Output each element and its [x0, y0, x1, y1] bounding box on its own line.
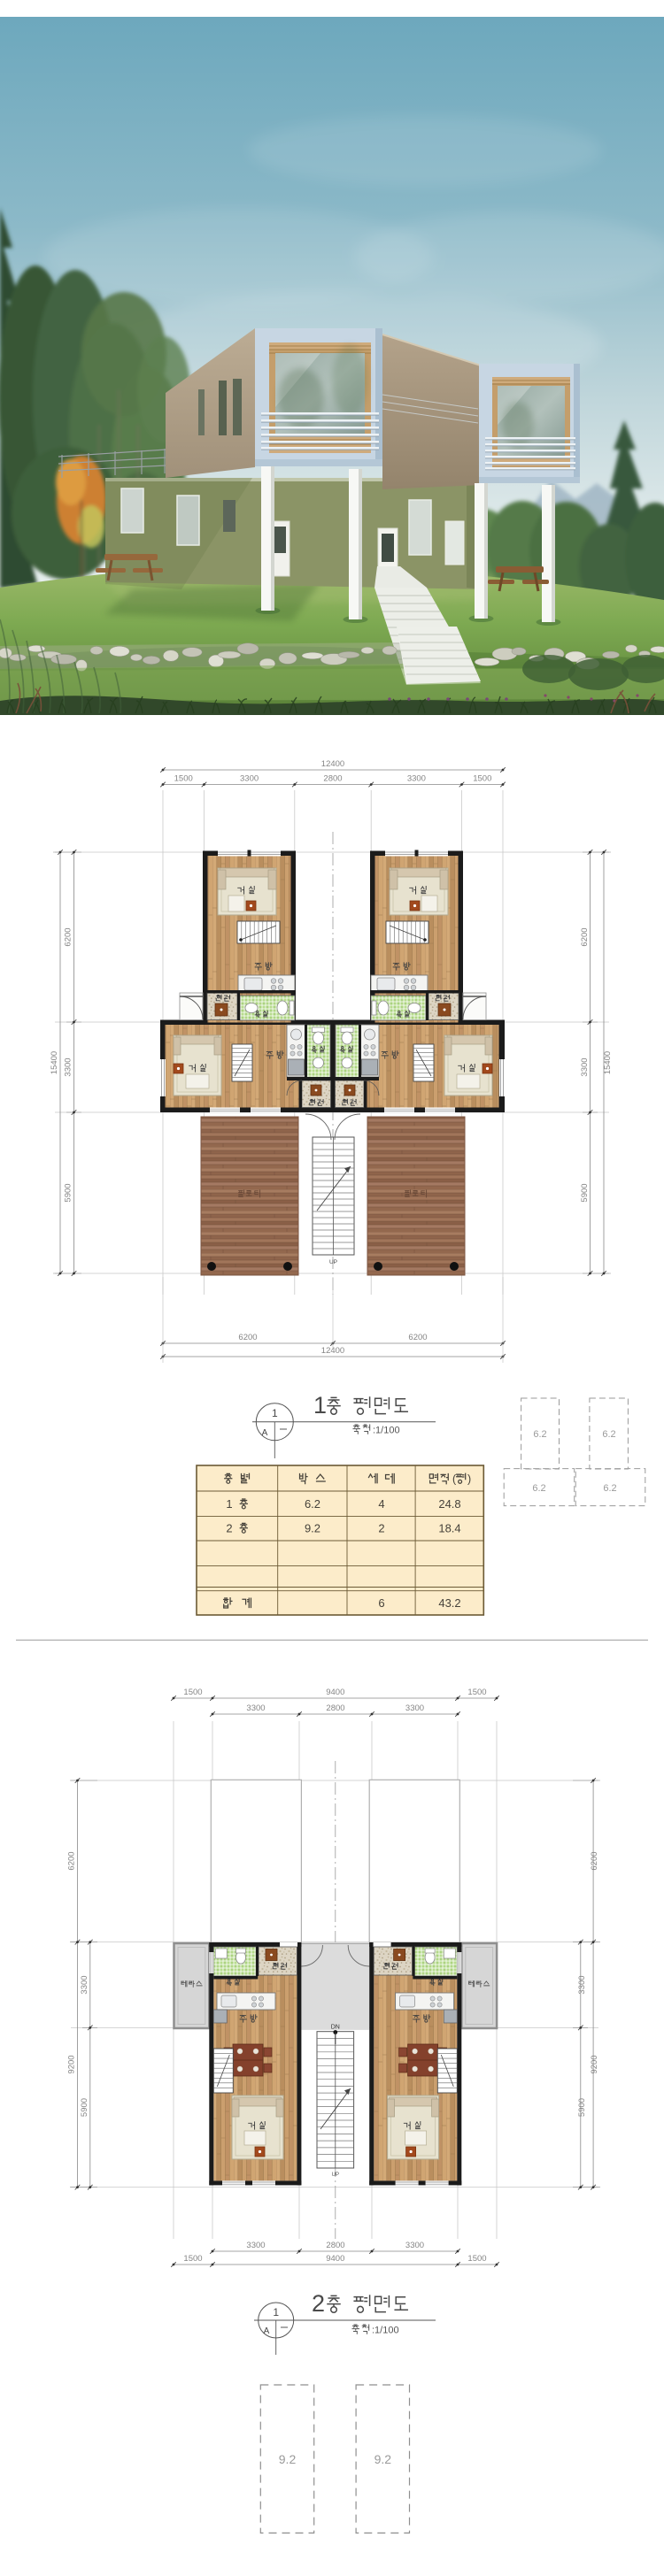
- svg-text:3300: 3300: [405, 2241, 424, 2250]
- svg-text:15400: 15400: [50, 1051, 59, 1074]
- svg-text:6200: 6200: [64, 927, 73, 946]
- svg-text:6.2: 6.2: [533, 1429, 546, 1440]
- svg-text:9400: 9400: [326, 1688, 344, 1697]
- svg-text:5900: 5900: [64, 1183, 73, 1202]
- svg-text:5900: 5900: [580, 1183, 590, 1202]
- svg-text:5900: 5900: [80, 2098, 89, 2117]
- svg-text:1: 1: [313, 1392, 327, 1419]
- svg-text:): ): [467, 1473, 471, 1486]
- svg-text::1/100: :1/100: [372, 2326, 399, 2336]
- svg-text:9200: 9200: [590, 2055, 599, 2073]
- svg-text:6200: 6200: [580, 927, 590, 946]
- svg-text:9200: 9200: [67, 2055, 77, 2073]
- svg-text:2800: 2800: [326, 2241, 344, 2250]
- svg-text::1/100: :1/100: [373, 1426, 400, 1436]
- svg-text:5900: 5900: [577, 2098, 587, 2117]
- svg-text:9400: 9400: [326, 2254, 344, 2264]
- svg-text:1500: 1500: [473, 774, 491, 784]
- svg-text:6200: 6200: [590, 1851, 599, 1870]
- svg-text:6.2: 6.2: [602, 1429, 615, 1440]
- svg-text:3300: 3300: [577, 1975, 587, 1994]
- svg-text:1500: 1500: [467, 2254, 486, 2264]
- svg-text:6.2: 6.2: [603, 1483, 616, 1494]
- svg-text:9.2: 9.2: [279, 2452, 297, 2466]
- svg-text:1500: 1500: [183, 2254, 202, 2264]
- svg-text:3300: 3300: [240, 774, 259, 784]
- svg-text:1: 1: [272, 1407, 278, 1419]
- svg-text:A: A: [264, 2326, 270, 2336]
- svg-text:1500: 1500: [467, 1688, 486, 1697]
- svg-text:3300: 3300: [407, 774, 426, 784]
- svg-text:6.2: 6.2: [305, 1497, 320, 1511]
- svg-text:2800: 2800: [323, 774, 342, 784]
- svg-text:18.4: 18.4: [438, 1522, 460, 1535]
- svg-text:3300: 3300: [246, 1703, 265, 1713]
- svg-text:2: 2: [312, 2290, 325, 2317]
- svg-text:DN: DN: [331, 2025, 340, 2031]
- svg-text:A: A: [262, 1428, 268, 1438]
- svg-text:24.8: 24.8: [438, 1497, 460, 1511]
- svg-text:UP: UP: [329, 1259, 337, 1265]
- svg-text:1500: 1500: [183, 1688, 202, 1697]
- svg-text:9.2: 9.2: [305, 1522, 320, 1535]
- svg-text:6: 6: [378, 1596, 384, 1610]
- svg-text:1: 1: [226, 1497, 232, 1511]
- svg-text:1: 1: [273, 2306, 279, 2318]
- svg-text:2800: 2800: [326, 1703, 344, 1713]
- svg-text:3300: 3300: [80, 1975, 89, 1994]
- svg-text:6200: 6200: [408, 1333, 427, 1342]
- svg-text:3300: 3300: [580, 1057, 590, 1076]
- svg-text:6200: 6200: [238, 1333, 257, 1342]
- svg-text:43.2: 43.2: [438, 1596, 460, 1610]
- svg-text:9.2: 9.2: [374, 2452, 392, 2466]
- svg-text:3300: 3300: [405, 1703, 424, 1713]
- svg-text:1500: 1500: [174, 774, 193, 784]
- svg-text:UP: UP: [332, 2172, 339, 2178]
- svg-text:6.2: 6.2: [532, 1483, 545, 1494]
- svg-text:15400: 15400: [603, 1051, 613, 1074]
- svg-text:2: 2: [378, 1522, 384, 1535]
- svg-text:4: 4: [378, 1497, 384, 1511]
- svg-text:3300: 3300: [246, 2241, 265, 2250]
- svg-text:2: 2: [226, 1522, 232, 1535]
- svg-text:3300: 3300: [64, 1057, 73, 1076]
- svg-text:12400: 12400: [321, 759, 344, 769]
- svg-text:6200: 6200: [67, 1851, 77, 1870]
